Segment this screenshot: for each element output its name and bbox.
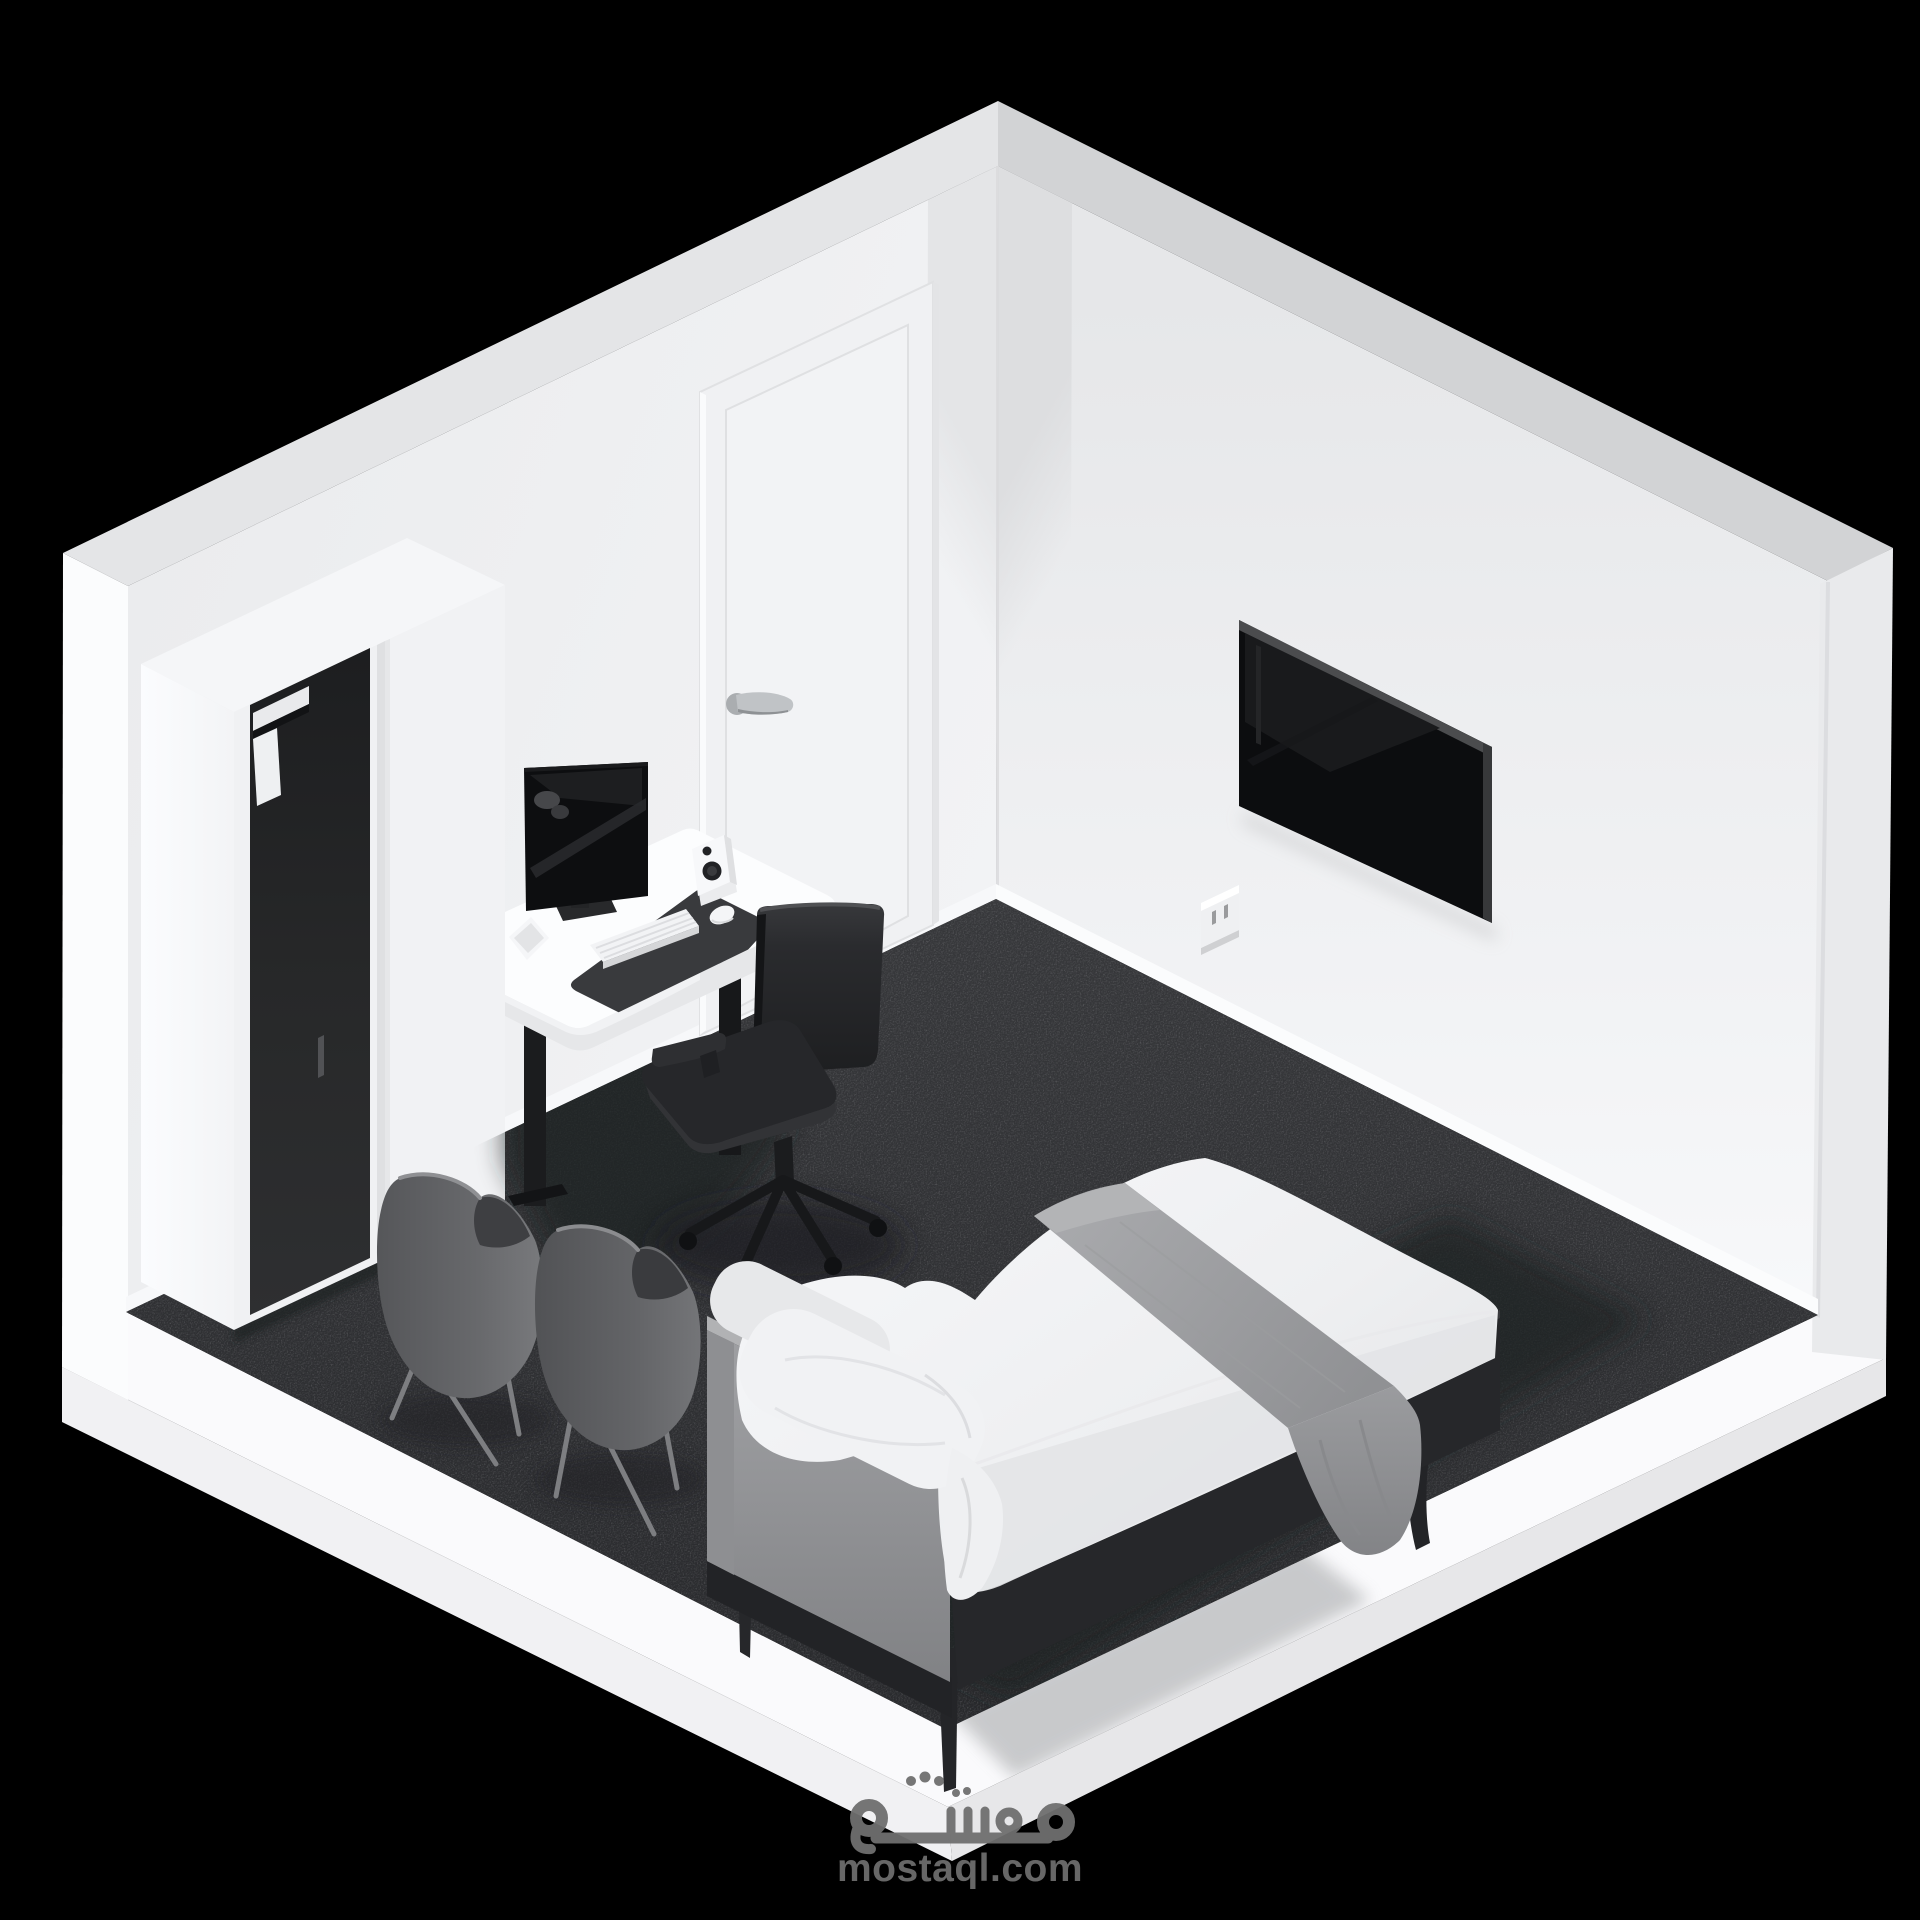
svg-text:mostaql.com: mostaql.com — [837, 1847, 1083, 1890]
